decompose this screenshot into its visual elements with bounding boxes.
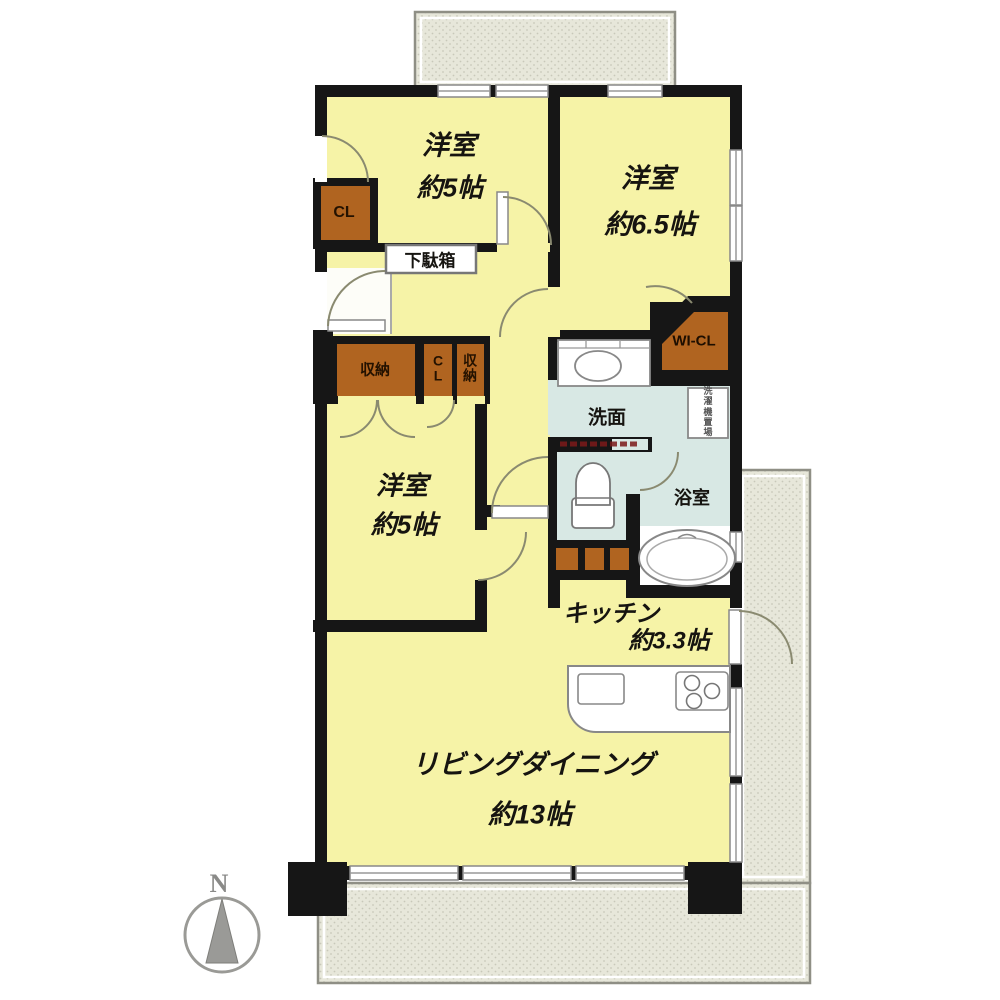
kitchen-counter	[568, 666, 730, 732]
walk-in-closet-label: WI-CL	[672, 333, 715, 350]
room-size-bedroom-top-right: 約6.5帖	[604, 203, 696, 242]
room-label-bedroom-middle: 洋室	[376, 466, 428, 503]
floor-plan: 洋室 約5帖 洋室 約6.5帖 洋室 約5帖 リビングダイニング 約13帖 キッ…	[0, 0, 1000, 1000]
floor-plan-drawing	[0, 0, 1000, 1000]
stove-burner	[685, 676, 700, 691]
stove-burner	[705, 684, 720, 699]
room-size-bedroom-middle: 約5帖	[371, 505, 437, 542]
room-label-living-dining: リビングダイニング	[412, 743, 655, 782]
compass	[185, 898, 259, 972]
shoe-cabinet-label: 下駄箱	[405, 247, 456, 272]
room-size-living-dining: 約13帖	[488, 793, 572, 832]
vanity-sink	[558, 340, 650, 386]
storage-wide-label: 収納	[360, 359, 390, 380]
laundry-space-label: 洗濯機置場	[703, 386, 713, 438]
closet-middle-label: CL	[431, 353, 446, 382]
closet-top-left-label: CL	[333, 204, 354, 222]
room-label-bedroom-top-left: 洋室	[422, 124, 476, 163]
room-label-washroom: 洗面	[588, 403, 626, 430]
room-size-kitchen: 約3.3帖	[628, 621, 709, 656]
toilet-icon	[572, 463, 614, 528]
balcony-top	[415, 12, 675, 88]
stove-burner	[687, 694, 702, 709]
compass-north-label: N	[210, 869, 229, 899]
room-label-bedroom-top-right: 洋室	[621, 157, 675, 196]
storage-narrow-label: 収納	[463, 353, 478, 382]
balcony-right	[737, 470, 810, 883]
kitchen-sink	[578, 674, 624, 704]
bathtub-icon	[639, 530, 735, 586]
room-label-bathroom: 浴室	[674, 484, 710, 510]
room-size-bedroom-top-left: 約5帖	[417, 168, 483, 205]
